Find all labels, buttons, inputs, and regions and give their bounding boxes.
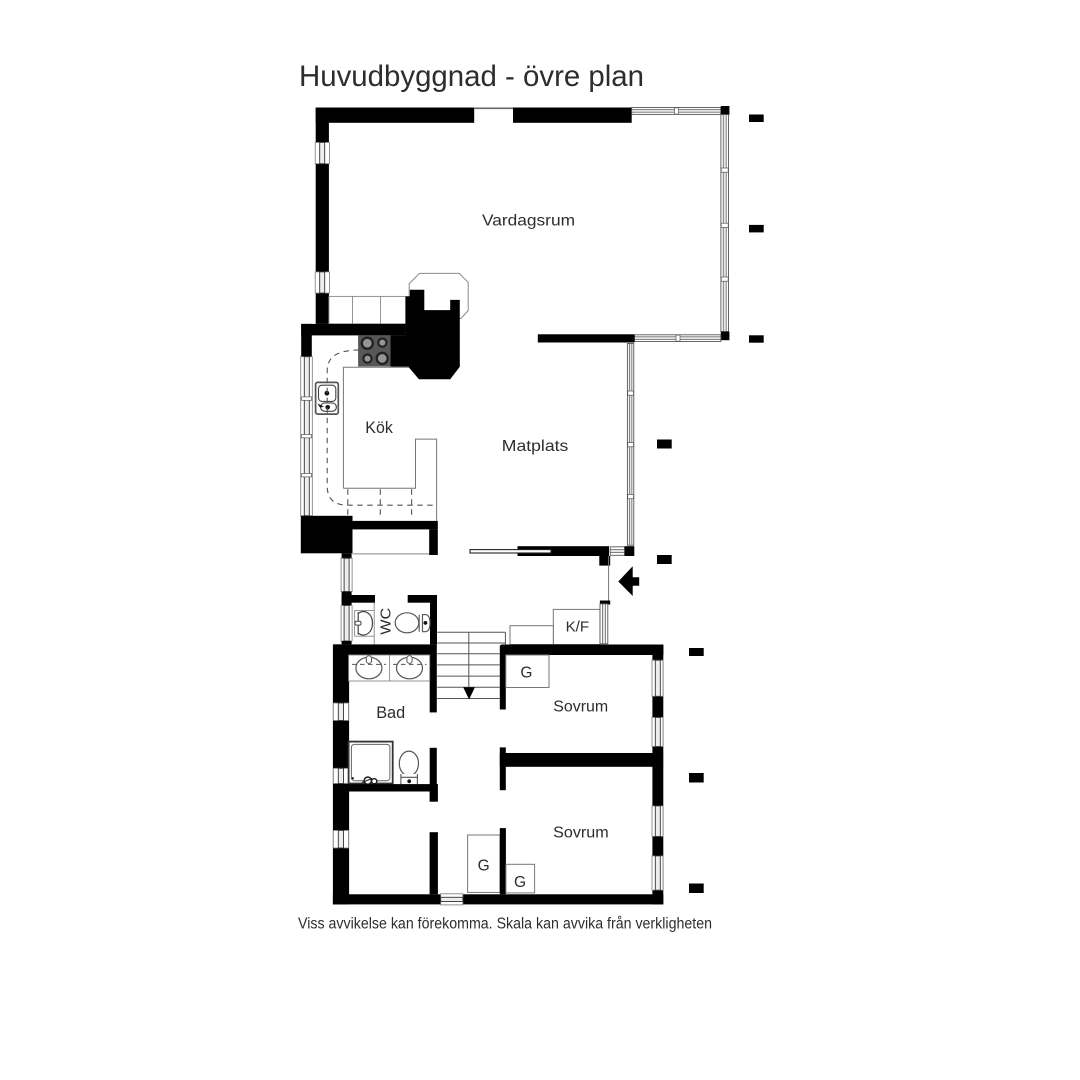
svg-text:Vardagsrum: Vardagsrum <box>482 212 575 229</box>
svg-text:Sovrum: Sovrum <box>553 698 608 715</box>
svg-text:Matplats: Matplats <box>502 438 569 455</box>
svg-text:WC: WC <box>378 608 395 635</box>
svg-text:Bad: Bad <box>376 703 405 722</box>
svg-text:Kök: Kök <box>365 418 393 437</box>
svg-text:G: G <box>520 665 532 682</box>
svg-text:Viss avvikelse kan förekomma.: Viss avvikelse kan förekomma. Skala kan … <box>298 916 712 933</box>
svg-text:K/F: K/F <box>566 620 590 636</box>
svg-text:Sovrum: Sovrum <box>553 825 609 842</box>
svg-text:G: G <box>514 874 526 891</box>
svg-text:Huvudbyggnad - övre plan: Huvudbyggnad - övre plan <box>299 60 644 93</box>
svg-text:G: G <box>478 858 490 875</box>
